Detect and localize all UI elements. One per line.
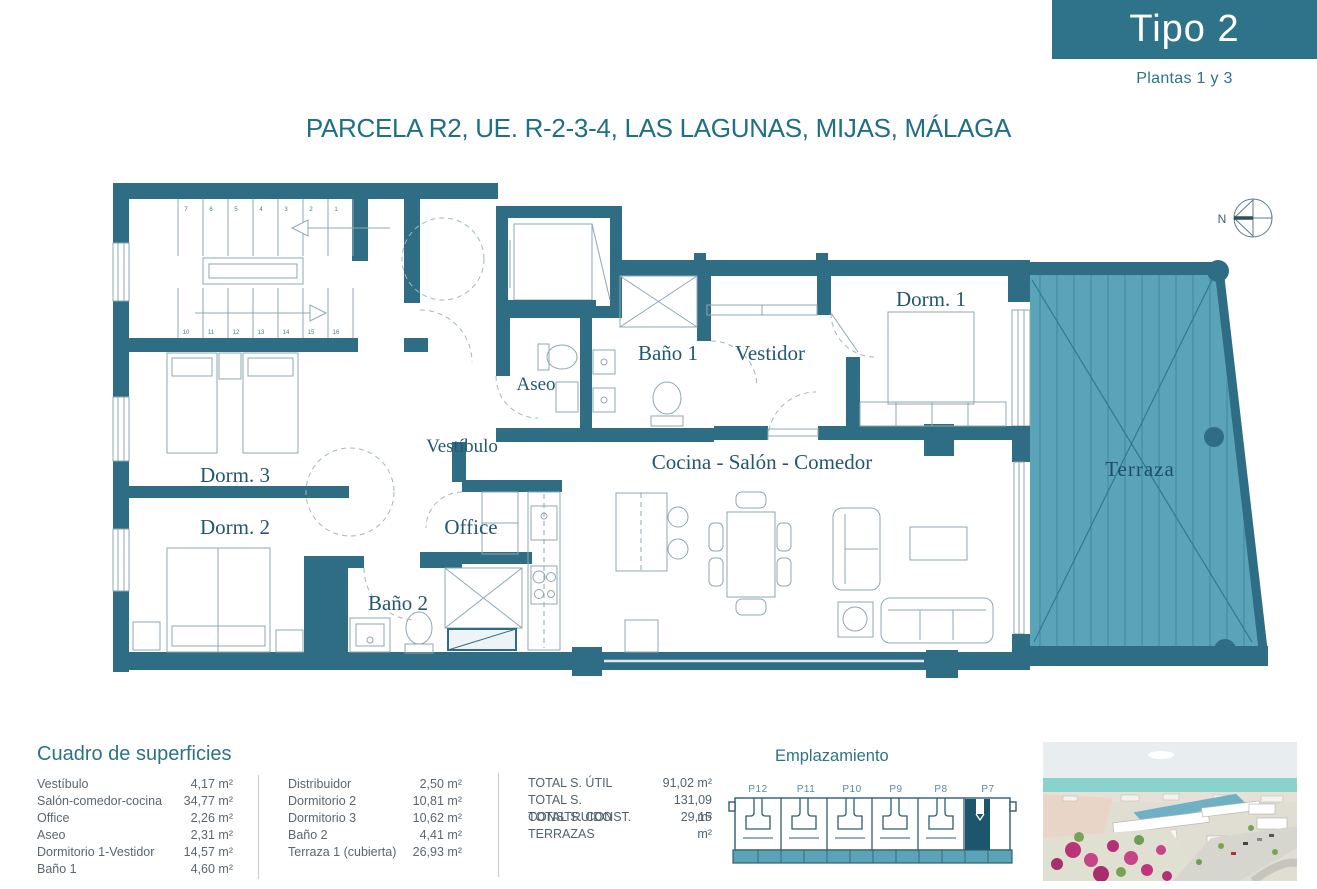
plot-label: P12 [748, 784, 767, 795]
coffee-table [910, 527, 967, 560]
stair-arrow-up [292, 220, 308, 236]
table-divider [498, 773, 499, 877]
type-header-box: Tipo 2 [1052, 0, 1317, 59]
totals-block: TOTAL S. ÚTIL91,02 m² TOTAL S. CONSTRUID… [528, 775, 712, 826]
stair-arrow-down [310, 305, 326, 321]
svg-text:16: 16 [333, 330, 340, 336]
stairwell: 7654321 10111213141516 [113, 199, 484, 352]
office-walls [420, 442, 562, 564]
surface-row: Dormitorio 310,62 m² [288, 810, 462, 827]
svg-text:4: 4 [259, 207, 263, 213]
pillar [924, 424, 954, 456]
chair [736, 492, 766, 508]
cabinet [625, 620, 658, 652]
dining-table [727, 512, 775, 597]
table-divider [258, 775, 259, 879]
vanity [593, 388, 615, 412]
chair [777, 523, 791, 551]
total-row: TOTAL S. CONSTRUIDO131,09 m² [528, 792, 712, 809]
window [113, 243, 129, 591]
surface-row: Vestíbulo4,17 m² [37, 776, 233, 793]
plot-label: P9 [889, 784, 902, 795]
plan-sheet: Tipo 2 Plantas 1 y 3 PARCELA R2, UE. R-2… [0, 0, 1317, 889]
chair [709, 558, 723, 586]
surface-row: Distribuidor2,50 m² [288, 776, 462, 793]
compass-north-label: N [1218, 212, 1227, 226]
window [1012, 310, 1030, 426]
stair-handrail [203, 258, 303, 284]
svg-text:1: 1 [334, 207, 338, 213]
living-furniture [709, 492, 993, 643]
room-label-terraza: Terraza [1105, 457, 1175, 481]
surface-row: Baño 24,41 m² [288, 827, 462, 844]
stool [668, 507, 688, 527]
surface-row: Office2,26 m² [37, 810, 233, 827]
svg-text:6: 6 [209, 207, 213, 213]
stair-treads [178, 199, 353, 338]
room-label-vestibulo: Vestíbulo [426, 436, 498, 457]
svg-text:11: 11 [208, 330, 215, 336]
chair [736, 599, 766, 615]
plot-label: P8 [934, 784, 947, 795]
nightstand [219, 353, 241, 379]
bedroom-walls [129, 486, 462, 652]
bed [243, 353, 298, 453]
svg-text:14: 14 [283, 330, 290, 336]
terrace-column [1207, 260, 1229, 282]
room-label-bano1: Baño 1 [638, 341, 698, 365]
type-label: Tipo 2 [1129, 8, 1239, 51]
terrace-area: Terraza [1030, 260, 1268, 666]
room-label-dorm3: Dorm. 3 [200, 463, 270, 487]
floorplan-drawing: Terraza [0, 160, 1317, 740]
room-label-dorm1: Dorm. 1 [896, 287, 966, 311]
stair-numbers-bottom: 10111213141516 [183, 330, 340, 336]
kitchen [528, 492, 688, 652]
surface-row: Salón-comedor-cocina34,77 m² [37, 793, 233, 810]
terrace-strip [733, 850, 1012, 863]
door-slot [768, 429, 818, 436]
svg-text:5: 5 [234, 207, 238, 213]
svg-text:10: 10 [183, 330, 190, 336]
nightstand [133, 622, 160, 650]
chair [709, 523, 723, 551]
plot-label: P7 [981, 784, 994, 795]
pillar [926, 650, 958, 678]
plot-label: P11 [797, 784, 816, 795]
terrace-column [1214, 639, 1236, 661]
svg-text:12: 12 [233, 330, 240, 336]
room-label-aseo: Aseo [516, 374, 555, 395]
svg-text:15: 15 [308, 330, 315, 336]
svg-text:2: 2 [309, 207, 313, 213]
vestidor-wardrobe [707, 305, 817, 315]
plot-label: P10 [842, 784, 861, 795]
surface-row: Baño 14,60 m² [37, 861, 233, 878]
toilet [406, 612, 432, 644]
page-title: PARCELA R2, UE. R-2-3-4, LAS LAGUNAS, MI… [0, 113, 1317, 144]
sofa [881, 598, 993, 643]
svg-text:7: 7 [184, 207, 188, 213]
bed [167, 353, 217, 453]
surfaces-column-1: Vestíbulo4,17 m² Salón-comedor-cocina34,… [37, 776, 233, 878]
surfaces-column-2: Distribuidor2,50 m² Dormitorio 210,81 m²… [288, 776, 462, 861]
pillar [572, 647, 602, 676]
surface-row: Dormitorio 210,81 m² [288, 793, 462, 810]
surface-row: Dormitorio 1-Vestidor14,57 m² [37, 844, 233, 861]
dorm2-furniture [133, 548, 303, 652]
svg-text:3: 3 [284, 207, 288, 213]
dorm3-furniture [167, 353, 298, 453]
terrace-column [1204, 427, 1224, 447]
compass-icon: N [1218, 199, 1272, 237]
room-label-vestidor: Vestidor [735, 341, 805, 365]
aerial-render-photo [1043, 742, 1297, 881]
surfaces-heading: Cuadro de superficies [37, 743, 232, 766]
svg-text:13: 13 [258, 330, 265, 336]
total-row: TOTAL S. CONST. TERRAZAS29,15 m² [528, 809, 712, 826]
stair-numbers-top: 7654321 [184, 207, 338, 213]
surface-row: Terraza 1 (cubierta)26,93 m² [288, 844, 462, 861]
floors-label: Plantas 1 y 3 [1052, 70, 1317, 88]
nightstand [276, 630, 303, 652]
room-label-dorm2: Dorm. 2 [200, 515, 270, 539]
total-row: TOTAL S. ÚTIL91,02 m² [528, 775, 712, 792]
sink [556, 382, 578, 412]
room-label-salon: Cocina - Salón - Comedor [652, 450, 872, 474]
room-label-bano2: Baño 2 [368, 591, 428, 615]
chair [777, 558, 791, 586]
stool [668, 539, 688, 559]
emplazamiento-diagram: P12 P11 P10 P9 P8 P7 [720, 745, 1020, 880]
bed [888, 312, 974, 404]
surface-row: Aseo2,31 m² [37, 827, 233, 844]
vanity [593, 350, 615, 374]
toilet [653, 382, 681, 414]
room-label-office: Office [444, 515, 497, 539]
